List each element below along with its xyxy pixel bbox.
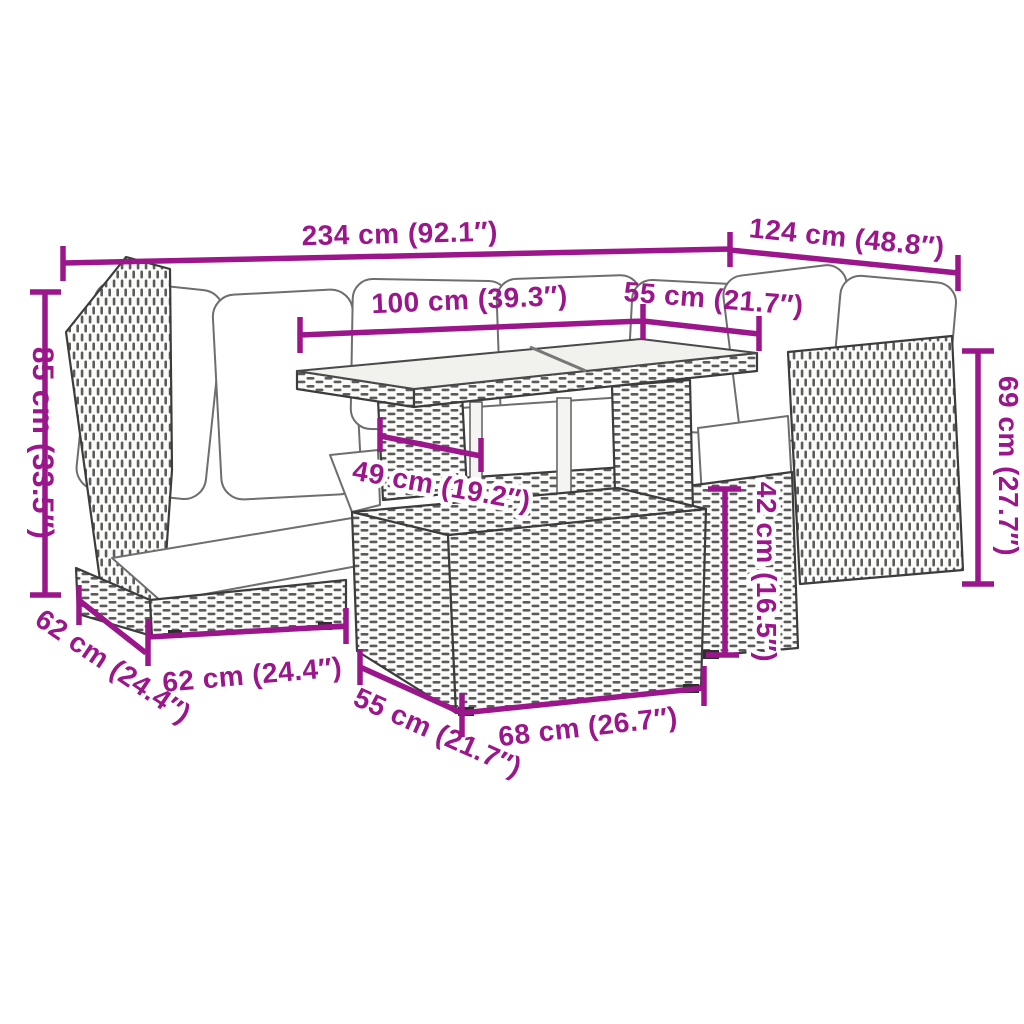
right-armrest-panel bbox=[788, 336, 963, 584]
dimension-diagram-page: 234 cm (92.1″) 124 cm (48.8″) 100 cm (39… bbox=[0, 0, 1024, 1024]
dim-label-overall-width: 234 cm (92.1″) bbox=[301, 216, 498, 251]
furniture-dimension-diagram: 234 cm (92.1″) 124 cm (48.8″) 100 cm (39… bbox=[0, 0, 1024, 1024]
ottoman bbox=[352, 488, 706, 716]
right-sofa bbox=[688, 263, 963, 659]
ottoman-front bbox=[448, 509, 706, 713]
dim-label-seat-width: 62 cm (24.4″) bbox=[161, 651, 343, 698]
dim-line-right-backrest-height bbox=[962, 351, 994, 584]
dim-label-backrest-height: 85 cm (33.5″) bbox=[26, 347, 59, 540]
dim-label-seat-height: 42 cm (16.5″) bbox=[751, 482, 782, 662]
ottoman-side bbox=[352, 512, 456, 713]
dim-label-right-backrest-height: 69 cm (27.7″) bbox=[993, 376, 1024, 556]
